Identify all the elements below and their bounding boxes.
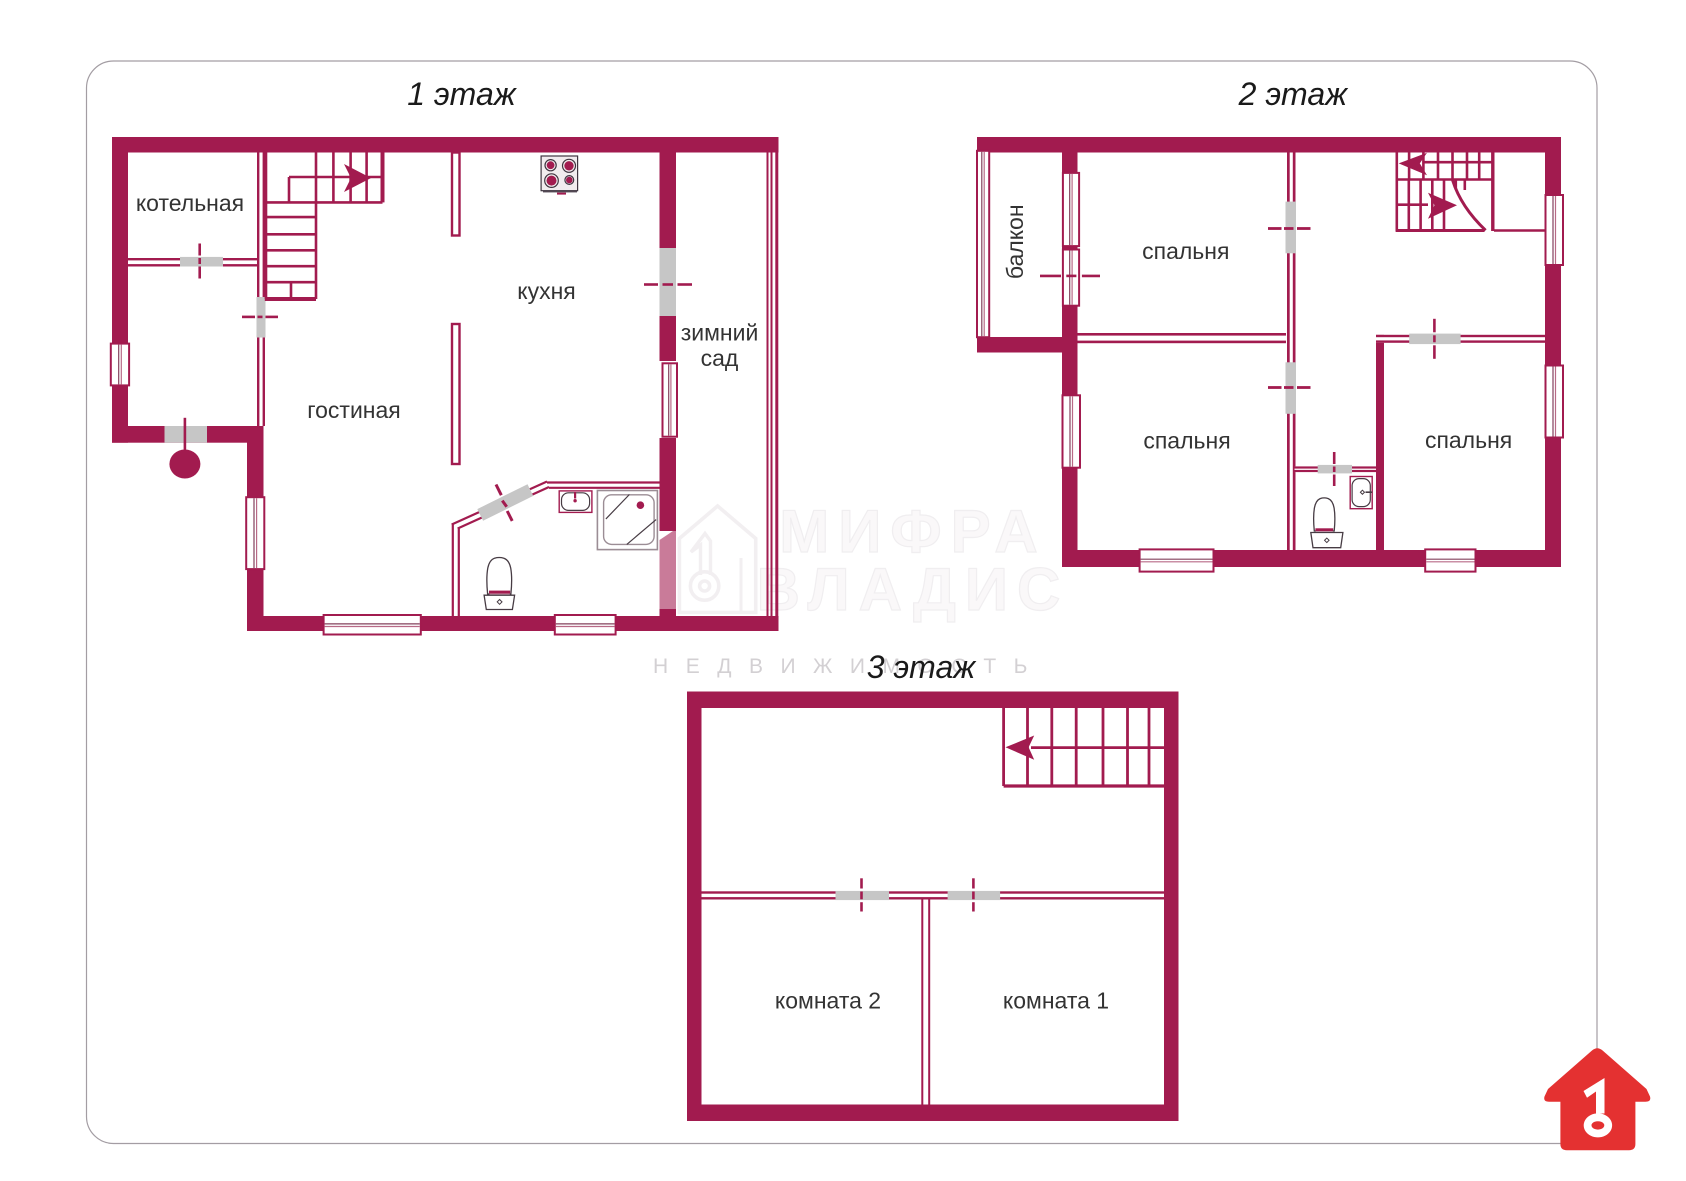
svg-text:комната 1: комната 1 — [1003, 988, 1109, 1014]
svg-text:сад: сад — [701, 345, 739, 371]
svg-text:кухня: кухня — [517, 278, 575, 304]
svg-text:спальня: спальня — [1142, 238, 1229, 264]
svg-text:2 этаж: 2 этаж — [1238, 76, 1350, 112]
svg-text:комната 2: комната 2 — [775, 988, 881, 1014]
svg-text:гостиная: гостиная — [307, 397, 401, 423]
svg-text:НЕДВИЖИМОСТЬ: НЕДВИЖИМОСТЬ — [653, 655, 1045, 678]
svg-text:балкон: балкон — [1002, 204, 1028, 279]
svg-text:спальня: спальня — [1143, 428, 1230, 454]
svg-text:зимний: зимний — [681, 320, 759, 346]
svg-text:1 этаж: 1 этаж — [407, 76, 518, 112]
svg-text:котельная: котельная — [136, 190, 244, 216]
svg-text:3 этаж: 3 этаж — [867, 649, 978, 685]
svg-text:спальня: спальня — [1425, 427, 1512, 453]
svg-text:ВЛАДИС: ВЛАДИС — [757, 556, 1070, 623]
svg-text:МИФРА: МИФРА — [779, 498, 1046, 565]
